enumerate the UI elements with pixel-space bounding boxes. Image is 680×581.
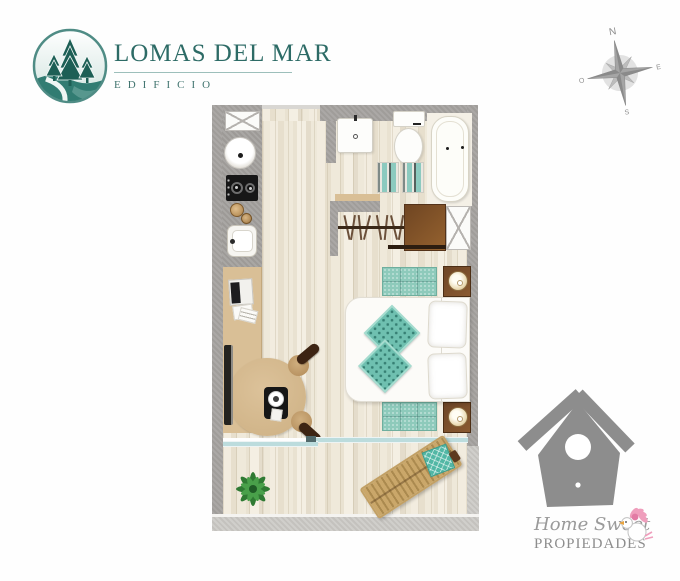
round-basin-icon [224, 137, 256, 169]
entry-threshold [262, 105, 320, 109]
kitchen-sink-icon [227, 225, 257, 257]
bathtub-inner [436, 121, 464, 197]
cooktop-knobs [227, 177, 230, 199]
rug [382, 267, 437, 296]
washbasin-tap [354, 115, 357, 121]
rug [382, 402, 437, 431]
napkin [270, 408, 283, 421]
hsp-line2: PROPIEDADES [534, 536, 647, 552]
brand-divider [114, 72, 292, 73]
table-lamp-icon [448, 271, 468, 291]
laptop-icon [228, 278, 254, 306]
toilet-tank [393, 111, 425, 127]
storage-box-icon [446, 206, 471, 250]
terrace-wall-right [467, 446, 479, 515]
brand-title: LOMAS DEL MAR [114, 40, 304, 68]
compass-west-label: O [579, 77, 586, 85]
birdhouse-icon [522, 394, 630, 507]
compass-rose-icon: N E S O [575, 18, 665, 116]
closet-wall-left [330, 201, 338, 256]
lounge-pillow [422, 444, 456, 478]
terrace-parapet [212, 514, 479, 531]
wardrobe-shelf [404, 204, 446, 251]
hanger-rod [338, 226, 407, 229]
burner-icon [245, 183, 255, 193]
bowl-icon [241, 213, 252, 224]
lomas-logo-icon [30, 26, 110, 106]
table-lamp-icon [448, 407, 468, 427]
tv-screen [224, 345, 233, 425]
sliding-glass-door [223, 441, 318, 447]
bathtub-icon [431, 116, 469, 202]
towel-icon [377, 162, 399, 193]
toilet-icon [394, 128, 423, 165]
pillow [427, 352, 468, 399]
tub-faucet [461, 146, 464, 149]
compass-south-label: S [624, 109, 630, 116]
towel-icon [402, 162, 424, 193]
vent-box-icon [225, 111, 260, 131]
lomas-del-mar-brand: LOMAS DEL MAR EDIFICIO [28, 24, 308, 108]
sink-basin [232, 230, 253, 252]
home-sweet-propiedades-brand: Home Sweet PROPIEDADES [512, 372, 672, 567]
page: LOMAS DEL MAR EDIFICIO N E S O [0, 0, 680, 581]
compass-east-label: E [656, 64, 662, 72]
tub-faucet [446, 147, 449, 150]
door-handle [306, 436, 316, 442]
bathroom-wall [326, 121, 336, 163]
plate-icon [268, 391, 284, 407]
floor-plan [211, 103, 479, 533]
compass-north-label: N [608, 26, 617, 38]
brand-subtitle: EDIFICIO [114, 79, 304, 91]
potted-plant-icon [228, 464, 278, 514]
cooktop-icon [226, 175, 258, 201]
laptop-screen [230, 282, 240, 304]
lomas-text-block: LOMAS DEL MAR EDIFICIO [114, 40, 304, 91]
washbasin-drain [353, 134, 358, 139]
sink-tap [230, 239, 235, 244]
pillow [427, 300, 468, 348]
washbasin-icon [337, 118, 373, 153]
burner-icon [231, 182, 243, 194]
closet-shelf-edge [335, 194, 380, 201]
